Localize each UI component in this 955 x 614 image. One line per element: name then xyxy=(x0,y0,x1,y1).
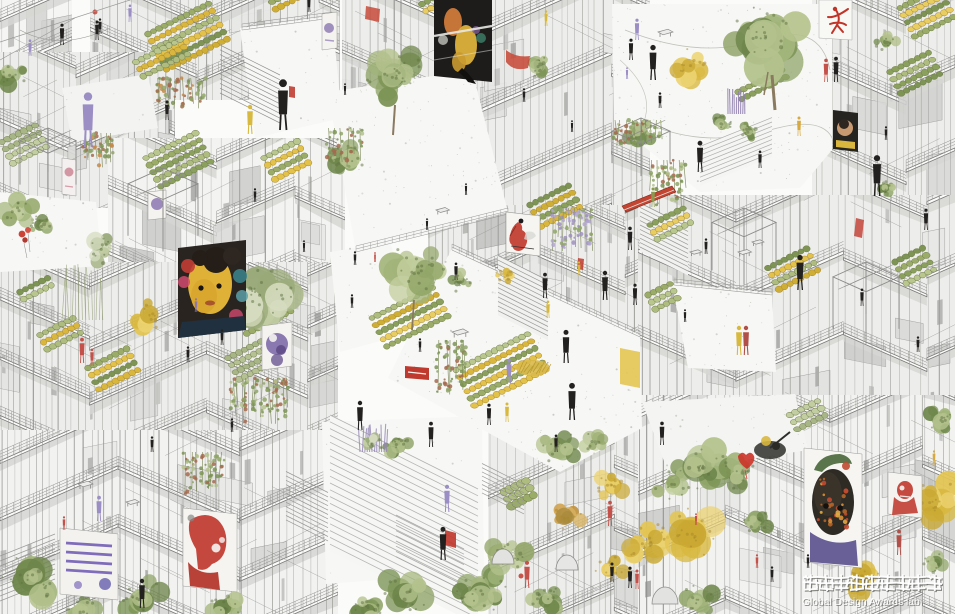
svg-text:Global Design Awards lab: Global Design Awards lab xyxy=(802,597,920,608)
